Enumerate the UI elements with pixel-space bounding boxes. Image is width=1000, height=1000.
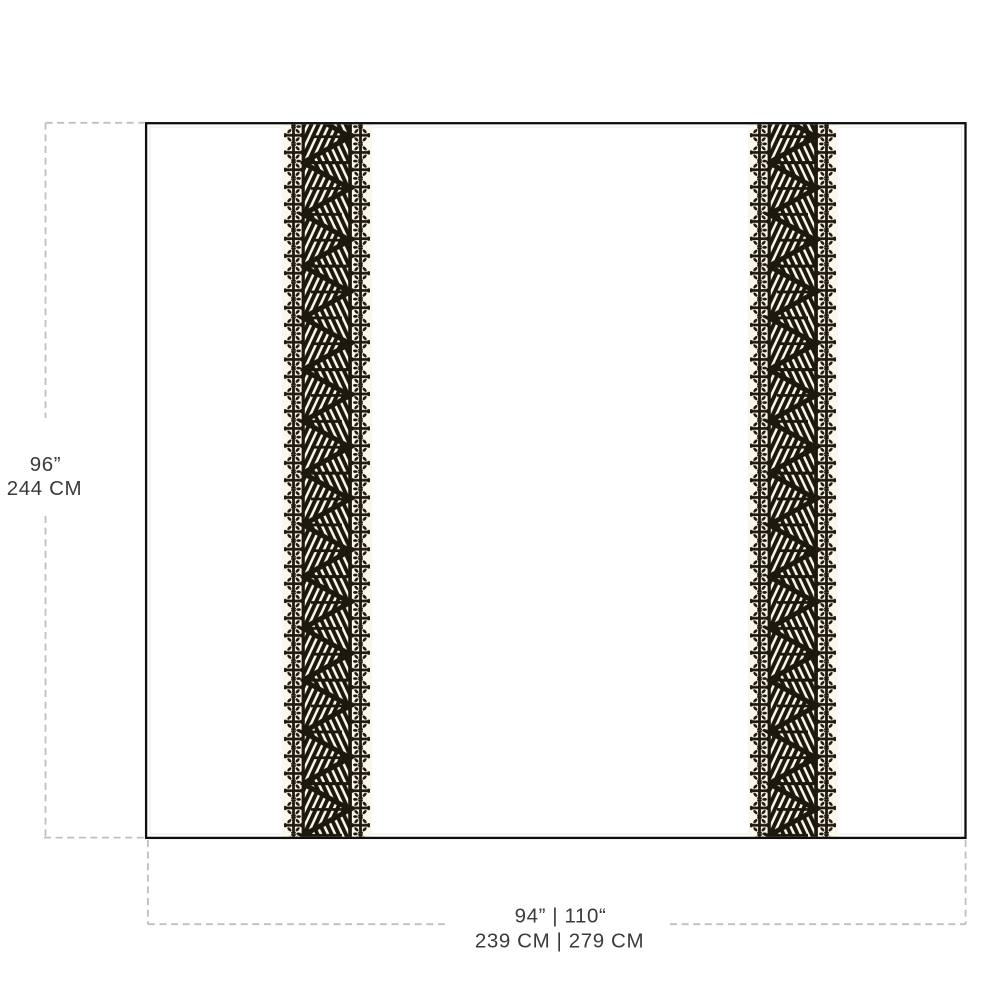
svg-text:239 CM | 279 CM: 239 CM | 279 CM [475,930,644,953]
svg-text:94” | 110“: 94” | 110“ [515,905,607,928]
svg-text:244 CM: 244 CM [7,477,82,500]
svg-text:96”: 96” [30,453,61,476]
